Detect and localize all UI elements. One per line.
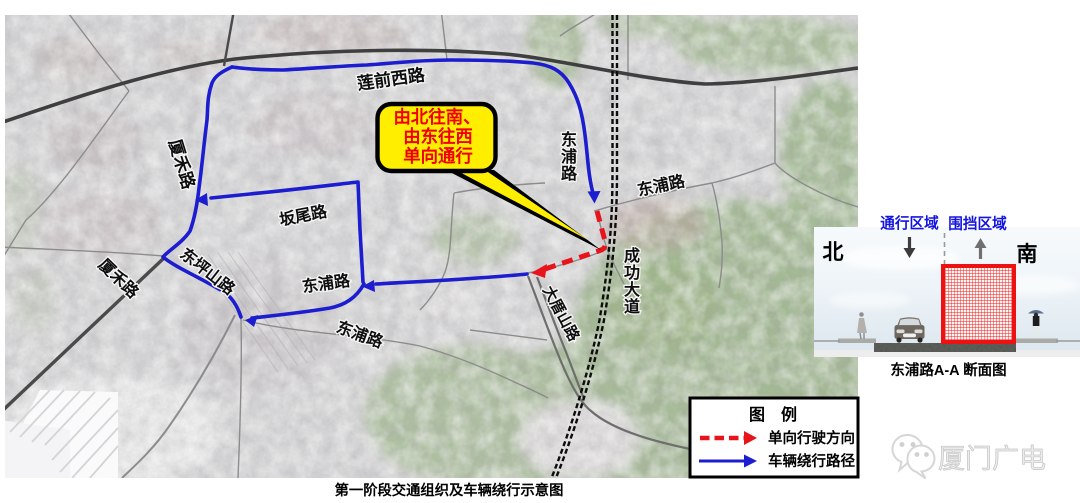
svg-text:南: 南: [1017, 242, 1038, 266]
svg-text:由北往南、: 由北往南、: [394, 107, 481, 127]
svg-text:单向通行: 单向通行: [403, 146, 473, 166]
svg-text:厦门广电: 厦门广电: [938, 444, 1046, 474]
svg-text:东: 东: [561, 130, 577, 149]
svg-text:成: 成: [624, 246, 640, 265]
svg-text:单向行驶方向: 单向行驶方向: [768, 429, 855, 447]
svg-text:车辆绕行路径: 车辆绕行路径: [768, 452, 855, 470]
svg-text:北: 北: [823, 241, 844, 264]
svg-text:由东往西: 由东往西: [403, 127, 473, 147]
svg-text:图 例: 图 例: [749, 405, 797, 424]
svg-text:东浦路A-A 断面图: 东浦路A-A 断面图: [890, 361, 1006, 379]
svg-text:道: 道: [624, 297, 640, 316]
svg-text:第一阶段交通组织及车辆绕行示意图: 第一阶段交通组织及车辆绕行示意图: [335, 481, 564, 499]
svg-text:浦: 浦: [561, 147, 577, 166]
svg-text:路: 路: [561, 164, 578, 183]
svg-text:大: 大: [624, 280, 640, 299]
svg-text:通行区域: 通行区域: [880, 214, 939, 232]
svg-text:功: 功: [624, 264, 640, 282]
svg-text:围挡区域: 围挡区域: [948, 215, 1007, 233]
